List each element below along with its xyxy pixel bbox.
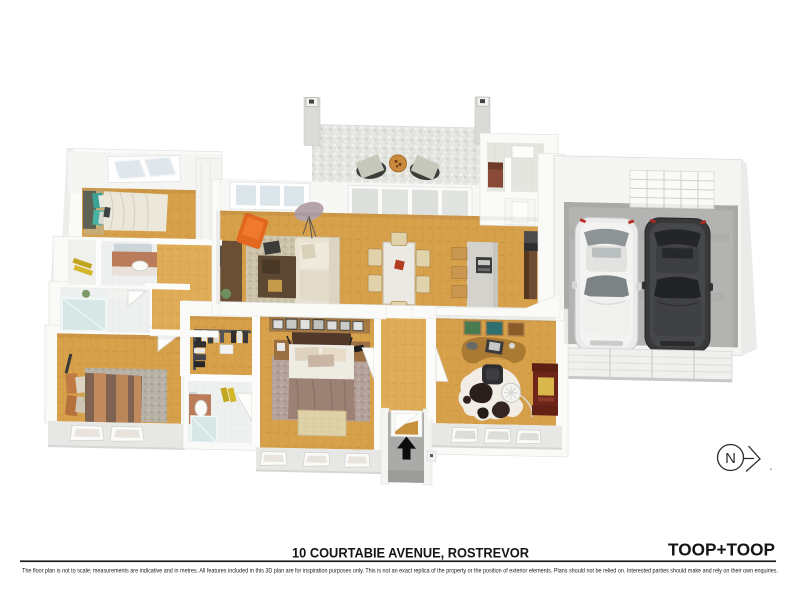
svg-text:N: N	[725, 450, 736, 467]
svg-text:TOOP+TOOP: TOOP+TOOP	[668, 540, 775, 560]
svg-text:10 COURTABIE AVENUE, ROSTREVOR: 10 COURTABIE AVENUE, ROSTREVOR	[292, 546, 529, 562]
svg-text:The floor plan is not to scale: The floor plan is not to scale; measurem…	[22, 568, 778, 575]
